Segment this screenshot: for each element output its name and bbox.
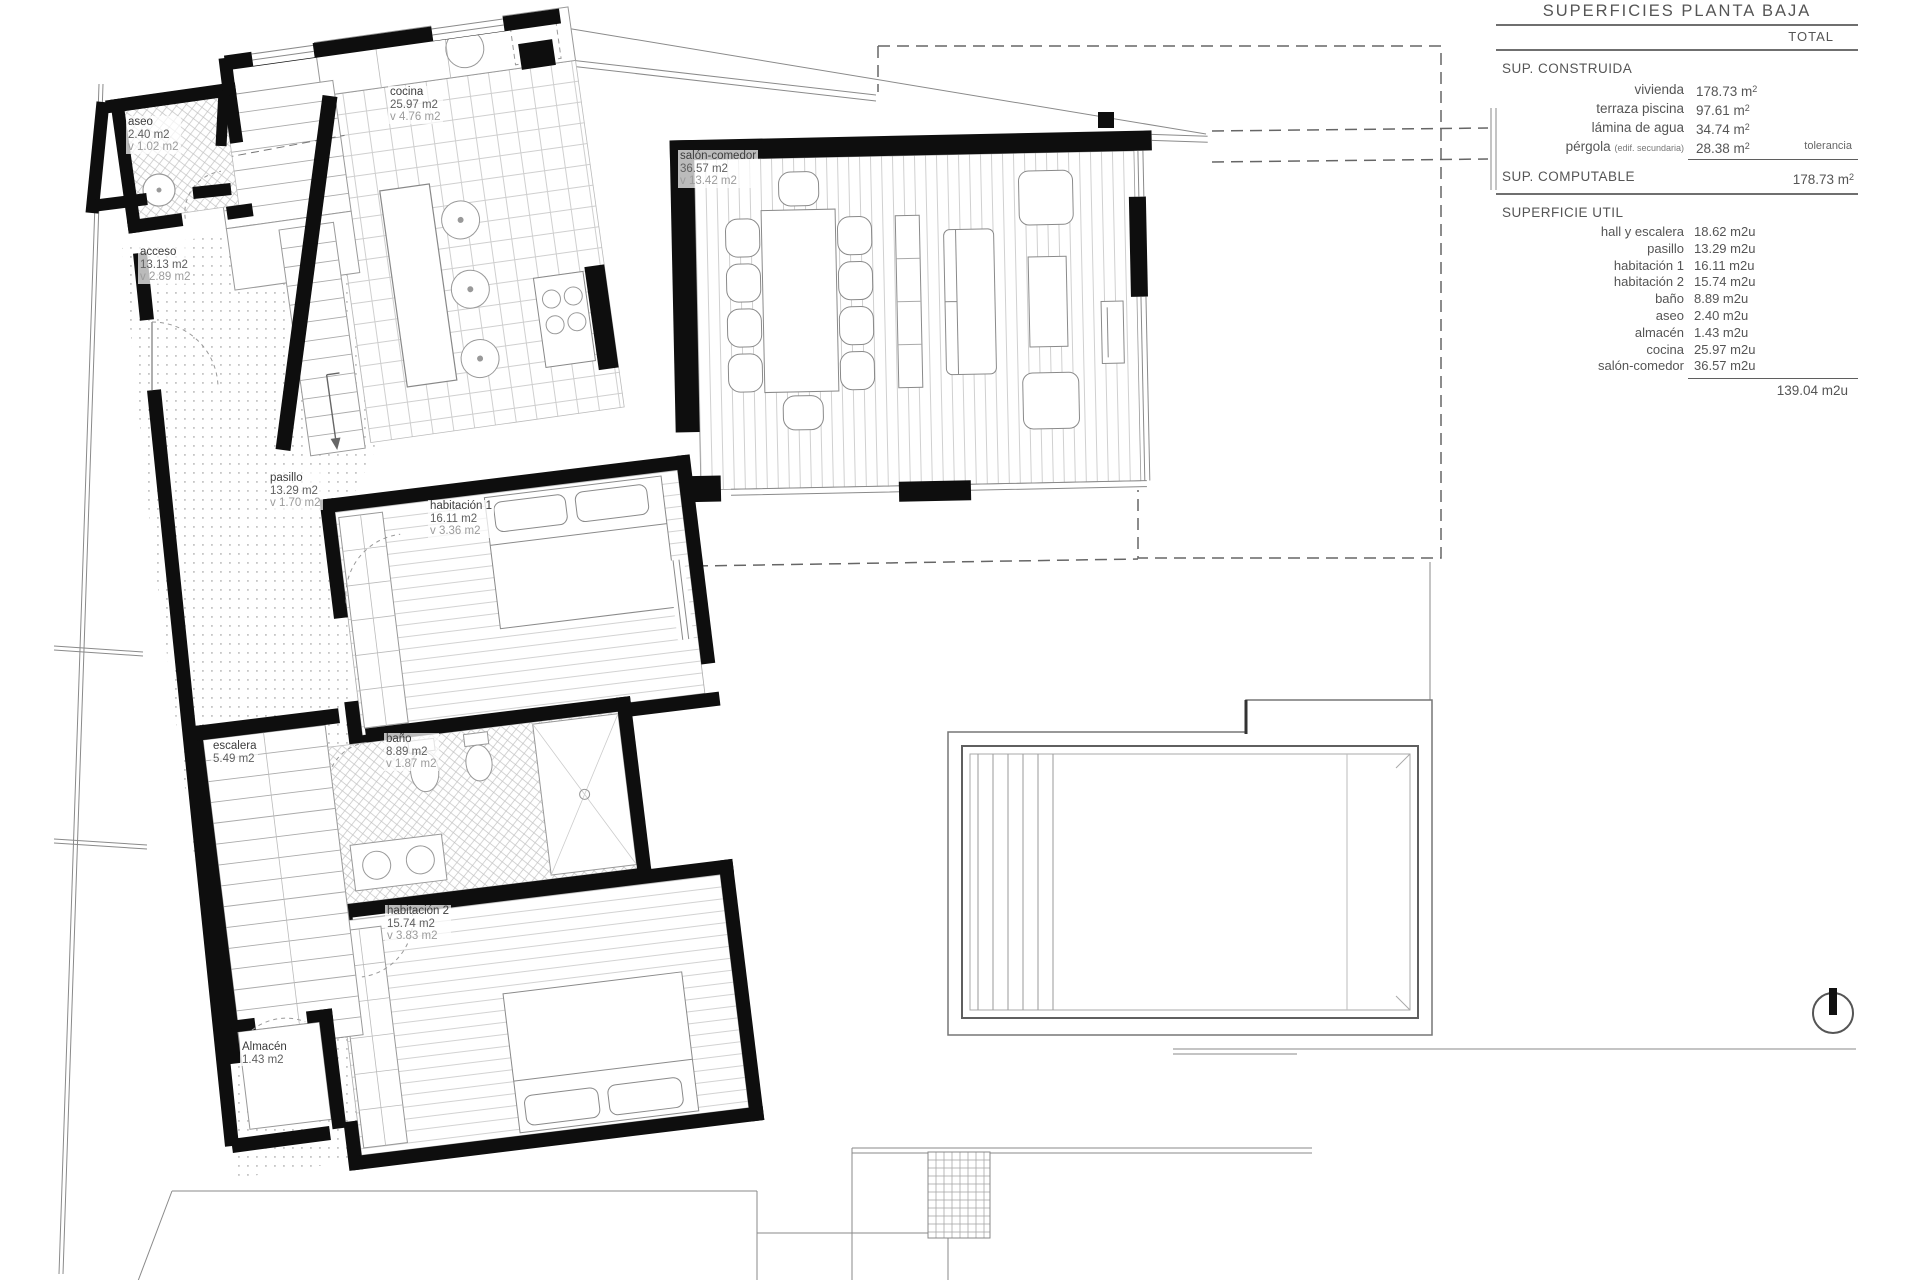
row-value: 34.74 m2 — [1696, 118, 1750, 139]
room-label-escalera: escalera5.49 m2 — [211, 740, 258, 765]
row-label: lámina de agua — [1496, 118, 1684, 137]
row-value: 28.38 m2 — [1696, 137, 1750, 158]
row-label: salón-comedor — [1496, 358, 1684, 375]
room-vent-area: v 3.36 m2 — [430, 525, 492, 538]
shower — [533, 714, 637, 875]
row-value: 1.43 m2u — [1694, 325, 1748, 342]
sideboard — [895, 215, 923, 387]
room-area: 13.29 m2 — [270, 485, 321, 498]
row-label: terraza piscina — [1496, 99, 1684, 118]
divider — [1688, 159, 1858, 160]
coffee-table — [1028, 256, 1068, 347]
useful-row: aseo2.40 m2u — [1496, 308, 1858, 325]
useful-row: pasillo13.29 m2u — [1496, 241, 1858, 258]
row-label-note: (edif. secundaria) — [1614, 143, 1684, 153]
room-name: Almacén — [242, 1041, 287, 1054]
constructed-row: vivienda178.73 m2 — [1496, 80, 1858, 99]
room-label-pasillo: pasillo13.29 m2v 1.70 m2 — [268, 472, 323, 510]
useful-row: habitación 116.11 m2u — [1496, 258, 1858, 275]
room-name: baño — [386, 733, 437, 746]
room-vent-area: v 1.70 m2 — [270, 497, 321, 510]
bed — [484, 476, 677, 629]
room-name: salón-comedor — [680, 150, 756, 163]
row-label: pasillo — [1496, 241, 1684, 258]
armchair — [1018, 170, 1073, 225]
useful-rows: hall y escalera18.62 m2upasillo13.29 m2u… — [1496, 224, 1858, 375]
constructed-heading: SUP. CONSTRUIDA — [1502, 61, 1858, 76]
constructed-rows: vivienda178.73 m2terraza piscina97.61 m2… — [1496, 80, 1858, 156]
room-habitacion-1 — [319, 454, 720, 751]
tv-bench — [1101, 301, 1124, 363]
panel-title: SUPERFICIES PLANTA BAJA — [1496, 0, 1858, 21]
room-label-habitaci-n-2: habitación 215.74 m2v 3.83 m2 — [385, 905, 451, 943]
room-label-habitaci-n-1: habitación 116.11 m2v 3.36 m2 — [428, 500, 494, 538]
room-area: 8.89 m2 — [386, 746, 437, 759]
room-area: 36.57 m2 — [680, 163, 756, 176]
total-column-header: TOTAL — [1496, 26, 1858, 46]
sofa — [944, 229, 997, 375]
room-vent-area: v 3.83 m2 — [387, 930, 449, 943]
room-name: habitación 2 — [387, 905, 449, 918]
useful-row: hall y escalera18.62 m2u — [1496, 224, 1858, 241]
row-label: aseo — [1496, 308, 1684, 325]
room-label-aseo: aseo2.40 m2v 1.02 m2 — [126, 116, 181, 154]
row-value: 13.29 m2u — [1694, 241, 1755, 258]
floor-plan-sheet: aseo2.40 m2v 1.02 m2acceso13.13 m2v 2.89… — [0, 0, 1920, 1280]
computable-label: SUP. COMPUTABLE — [1502, 164, 1635, 190]
useful-row: baño8.89 m2u — [1496, 291, 1858, 308]
room-area: 5.49 m2 — [213, 753, 256, 766]
room-label-sal-n-comedor: salón-comedor36.57 m2v 13.42 m2 — [678, 150, 758, 188]
room-name: cocina — [390, 86, 441, 99]
row-value: 178.73 m2 — [1696, 80, 1757, 101]
room-name: acceso — [140, 246, 191, 259]
row-value: 15.74 m2u — [1694, 274, 1755, 291]
room-area: 2.40 m2 — [128, 129, 179, 142]
useful-row: almacén1.43 m2u — [1496, 325, 1858, 342]
row-value: 16.11 m2u — [1694, 258, 1754, 275]
room-name: pasillo — [270, 472, 321, 485]
room-name: escalera — [213, 740, 256, 753]
useful-row: cocina25.97 m2u — [1496, 342, 1858, 359]
computable-value: 178.73 m2 — [1793, 164, 1854, 193]
useful-row: habitación 215.74 m2u — [1496, 274, 1858, 291]
row-label: almacén — [1496, 325, 1684, 342]
row-value: 18.62 m2u — [1694, 224, 1755, 241]
row-value: 25.97 m2u — [1694, 342, 1755, 359]
useful-heading: SUPERFICIE UTIL — [1502, 205, 1858, 220]
room-vent-area: v 4.76 m2 — [390, 111, 441, 124]
row-label: vivienda — [1496, 80, 1684, 99]
bed — [503, 972, 699, 1133]
room-area: 25.97 m2 — [390, 99, 441, 112]
room-vent-area: v 13.42 m2 — [680, 175, 756, 188]
row-value: 8.89 m2u — [1694, 291, 1748, 308]
room-area: 13.13 m2 — [140, 259, 191, 272]
room-vent-area: v 2.89 m2 — [140, 271, 191, 284]
row-label: habitación 2 — [1496, 274, 1684, 291]
room-area: 15.74 m2 — [387, 918, 449, 931]
armchair — [1023, 372, 1080, 429]
pool — [948, 700, 1432, 1035]
room-label-almac-n: Almacén1.43 m2 — [240, 1041, 289, 1066]
room-area: 16.11 m2 — [430, 513, 492, 526]
pillar — [1098, 112, 1114, 128]
constructed-row: terraza piscina97.61 m2 — [1496, 99, 1858, 118]
divider — [1496, 49, 1858, 51]
north-arrow-icon — [1813, 988, 1853, 1033]
computable-row: SUP. COMPUTABLE 178.73 m2 — [1496, 164, 1858, 190]
room-name: habitación 1 — [430, 500, 492, 513]
useful-total: 139.04 m2u — [1496, 379, 1858, 398]
row-label: pérgola (edif. secundaria) — [1496, 137, 1684, 158]
room-name: aseo — [128, 116, 179, 129]
room-vent-area: v 1.87 m2 — [386, 758, 437, 771]
room-label-ba-o: baño8.89 m2v 1.87 m2 — [384, 733, 439, 771]
utility-box — [928, 1152, 990, 1238]
row-value: 36.57 m2u — [1694, 358, 1755, 375]
constructed-row: pérgola (edif. secundaria)28.38 m2tolera… — [1496, 137, 1858, 156]
row-label: hall y escalera — [1496, 224, 1684, 241]
useful-row: salón-comedor36.57 m2u — [1496, 358, 1858, 375]
row-value: 2.40 m2u — [1694, 308, 1748, 325]
row-value: 97.61 m2 — [1696, 99, 1750, 120]
row-label: habitación 1 — [1496, 258, 1684, 275]
room-label-acceso: acceso13.13 m2v 2.89 m2 — [138, 246, 193, 284]
room-vent-area: v 1.02 m2 — [128, 141, 179, 154]
constructed-row: lámina de agua34.74 m2 — [1496, 118, 1858, 137]
row-label: cocina — [1496, 342, 1684, 359]
areas-panel: SUPERFICIES PLANTA BAJA TOTAL SUP. CONST… — [1496, 0, 1858, 398]
room-area: 1.43 m2 — [242, 1054, 287, 1067]
row-label: baño — [1496, 291, 1684, 308]
tolerance-note: tolerancia — [1804, 137, 1852, 156]
room-label-cocina: cocina25.97 m2v 4.76 m2 — [388, 86, 443, 124]
divider — [1496, 193, 1858, 195]
